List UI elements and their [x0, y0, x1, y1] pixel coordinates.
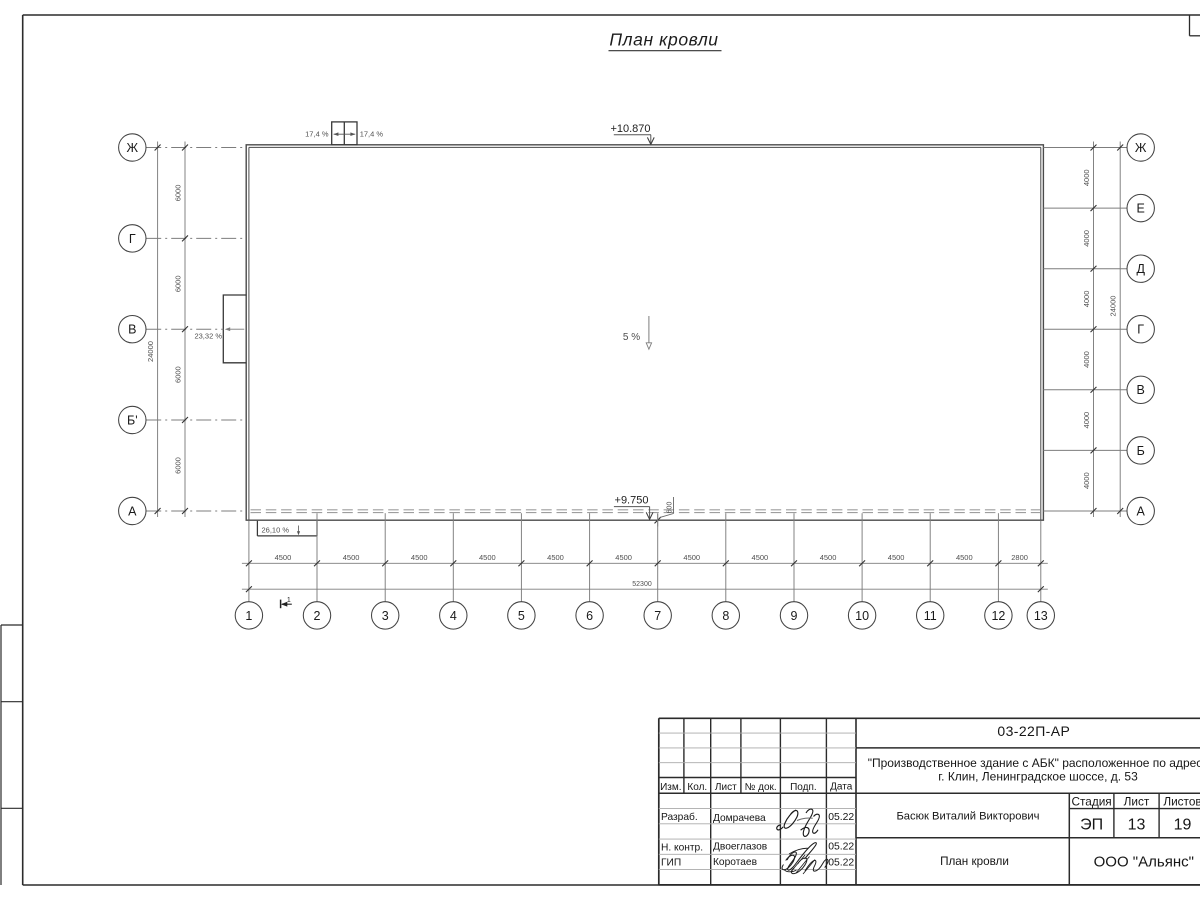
svg-text:4500: 4500 — [683, 553, 700, 562]
svg-text:9: 9 — [791, 609, 798, 623]
svg-text:19: 19 — [1174, 816, 1192, 833]
svg-text:8: 8 — [722, 609, 729, 623]
svg-text:6: 6 — [586, 609, 593, 623]
svg-text:6000: 6000 — [174, 275, 183, 292]
svg-text:4500: 4500 — [752, 553, 769, 562]
svg-text:6000: 6000 — [174, 457, 183, 474]
svg-text:План кровли: План кровли — [609, 30, 718, 50]
svg-text:4500: 4500 — [479, 553, 496, 562]
svg-text:6000: 6000 — [174, 366, 183, 383]
svg-text:Стадия: Стадия — [1071, 794, 1111, 808]
svg-text:Г: Г — [1137, 323, 1144, 337]
svg-text:05.22: 05.22 — [828, 858, 854, 869]
svg-text:17,4 %: 17,4 % — [360, 130, 384, 139]
svg-text:Двоеглазов: Двоеглазов — [713, 842, 767, 853]
svg-text:Подп.: Подп. — [790, 782, 817, 793]
svg-text:Н. контр.: Н. контр. — [661, 842, 703, 853]
svg-text:3: 3 — [382, 609, 389, 623]
svg-text:4500: 4500 — [547, 553, 564, 562]
svg-text:№ док.: № док. — [745, 782, 777, 793]
svg-text:В: В — [1137, 383, 1145, 397]
svg-text:Изм.: Изм. — [660, 782, 681, 793]
svg-text:5 %: 5 % — [623, 332, 640, 343]
svg-text:Коротаев: Коротаев — [713, 857, 757, 868]
svg-text:6000: 6000 — [174, 185, 183, 202]
svg-text:26,10 %: 26,10 % — [262, 525, 290, 534]
svg-text:Домрачева: Домрачева — [713, 813, 766, 824]
svg-text:05.22: 05.22 — [828, 841, 854, 852]
svg-text:4000: 4000 — [1082, 291, 1091, 308]
svg-text:03-22П-АР: 03-22П-АР — [997, 723, 1070, 739]
svg-text:1: 1 — [245, 609, 252, 623]
svg-text:"Производственное здание с АБК: "Производственное здание с АБК" располож… — [868, 756, 1200, 770]
svg-text:4500: 4500 — [615, 553, 632, 562]
svg-text:24000: 24000 — [146, 341, 155, 362]
svg-text:52300: 52300 — [632, 581, 652, 588]
svg-text:ООО "Альянс": ООО "Альянс" — [1094, 853, 1194, 870]
svg-text:4500: 4500 — [820, 553, 837, 562]
svg-text:24000: 24000 — [1109, 296, 1118, 317]
svg-text:4: 4 — [450, 609, 457, 623]
svg-text:Лист: Лист — [1124, 794, 1150, 808]
svg-text:4000: 4000 — [1082, 472, 1091, 489]
svg-text:4000: 4000 — [1082, 169, 1091, 186]
svg-text:Разраб.: Разраб. — [661, 811, 698, 823]
svg-text:Б: Б — [1137, 444, 1145, 458]
svg-text:10: 10 — [855, 609, 869, 623]
svg-text:Ж: Ж — [1135, 141, 1147, 155]
svg-text:План кровли: План кровли — [940, 855, 1009, 868]
svg-text:ЭП: ЭП — [1080, 816, 1103, 833]
svg-text:Листов: Листов — [1163, 794, 1200, 808]
svg-text:ГИП: ГИП — [661, 858, 681, 869]
svg-text:В: В — [128, 323, 136, 337]
svg-text:4500: 4500 — [956, 553, 973, 562]
svg-text:Лист: Лист — [715, 782, 737, 793]
svg-text:4500: 4500 — [411, 553, 428, 562]
svg-text:4500: 4500 — [275, 553, 292, 562]
svg-text:Б': Б' — [127, 413, 138, 427]
svg-text:Басюк Виталий Викторович: Басюк Виталий Викторович — [896, 811, 1039, 823]
svg-text:17,4 %: 17,4 % — [305, 130, 329, 139]
svg-text:13: 13 — [1034, 609, 1048, 623]
svg-text:Д: Д — [1136, 262, 1145, 276]
svg-text:4000: 4000 — [1082, 351, 1091, 368]
svg-text:600: 600 — [667, 502, 674, 514]
svg-text:4500: 4500 — [343, 553, 360, 562]
svg-text:Е: Е — [1137, 202, 1145, 216]
svg-text:05.22: 05.22 — [828, 812, 854, 823]
svg-text:4500: 4500 — [888, 553, 905, 562]
svg-text:А: А — [128, 504, 137, 518]
svg-text:Ж: Ж — [127, 141, 139, 155]
svg-text:1: 1 — [287, 597, 291, 604]
svg-text:12: 12 — [991, 609, 1005, 623]
svg-text:7: 7 — [654, 609, 661, 623]
svg-text:А: А — [1137, 504, 1146, 518]
svg-text:13: 13 — [1128, 816, 1146, 833]
svg-text:2: 2 — [314, 609, 321, 623]
svg-text:Дата: Дата — [830, 782, 853, 793]
svg-text:4000: 4000 — [1082, 230, 1091, 247]
svg-text:+9.750: +9.750 — [615, 495, 649, 507]
svg-text:2800: 2800 — [1011, 553, 1028, 562]
svg-text:4000: 4000 — [1082, 412, 1091, 429]
svg-text:Кол.: Кол. — [687, 782, 707, 793]
svg-text:23,32 %: 23,32 % — [194, 332, 222, 341]
svg-text:г. Клин, Ленинградское шоссе,: г. Клин, Ленинградское шоссе, д. 53 — [938, 769, 1138, 783]
svg-text:5: 5 — [518, 609, 525, 623]
svg-text:Г: Г — [129, 232, 136, 246]
svg-text:+10.870: +10.870 — [610, 123, 650, 135]
svg-text:11: 11 — [924, 609, 937, 623]
